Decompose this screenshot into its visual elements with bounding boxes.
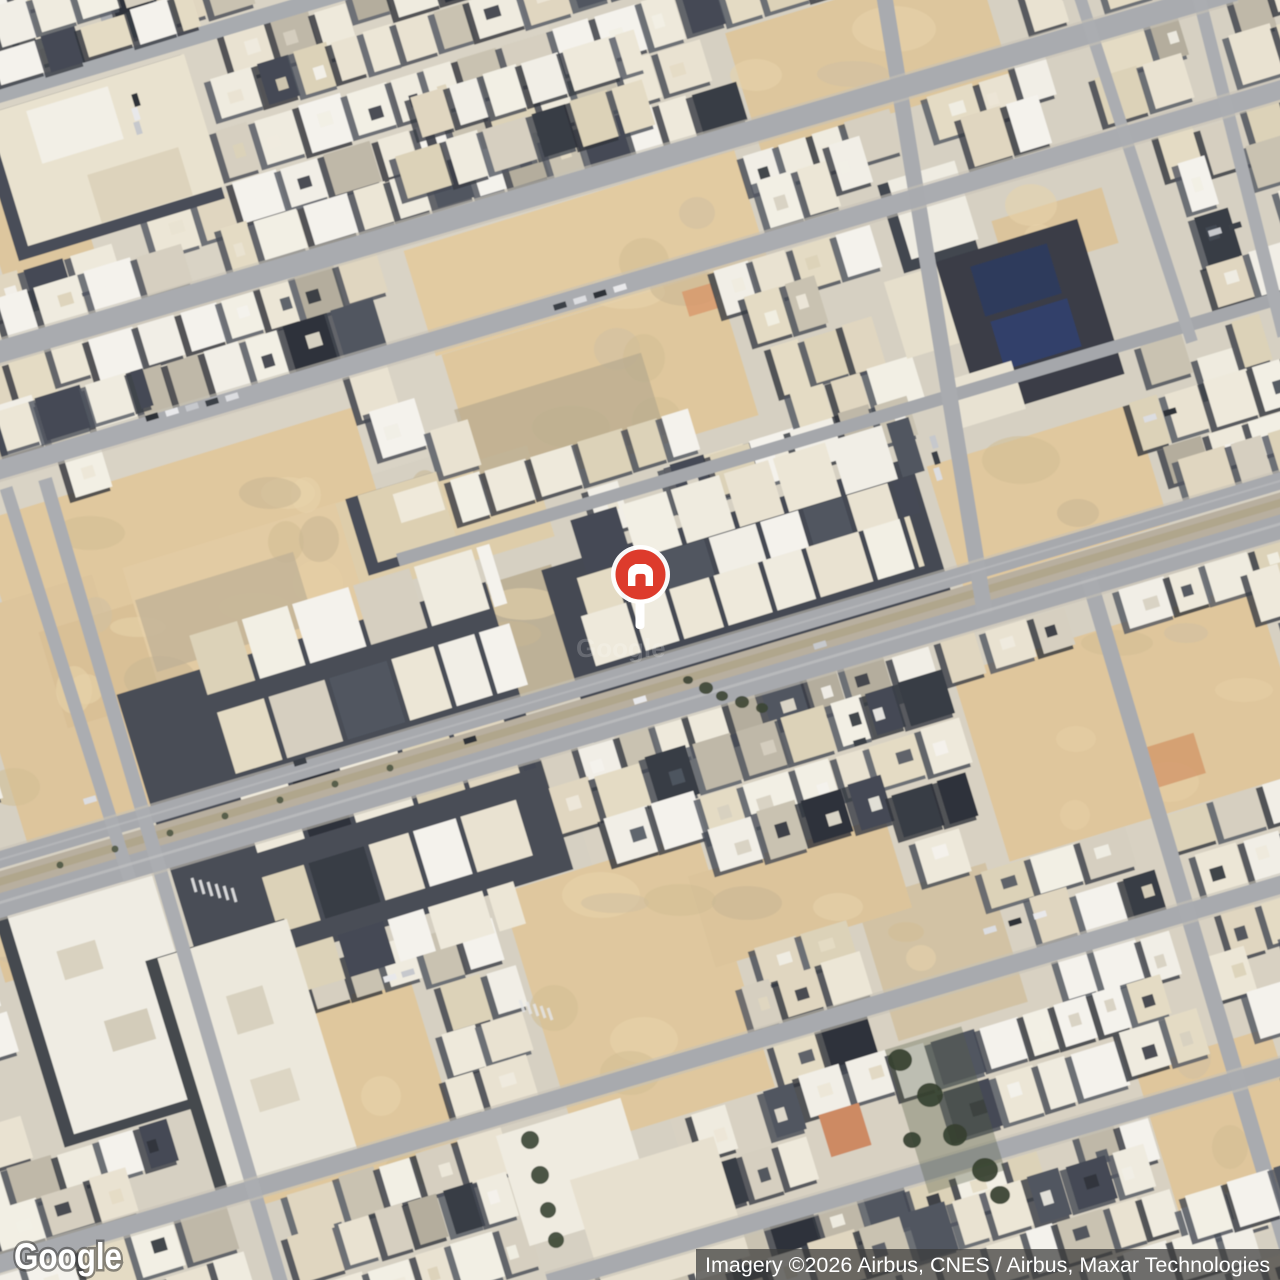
svg-text:Imagery ©2026 Airbus, CNES / A: Imagery ©2026 Airbus, CNES / Airbus, Max…: [705, 1253, 1270, 1277]
svg-text:Google: Google: [14, 1236, 122, 1277]
svg-text:Google: Google: [576, 633, 666, 663]
